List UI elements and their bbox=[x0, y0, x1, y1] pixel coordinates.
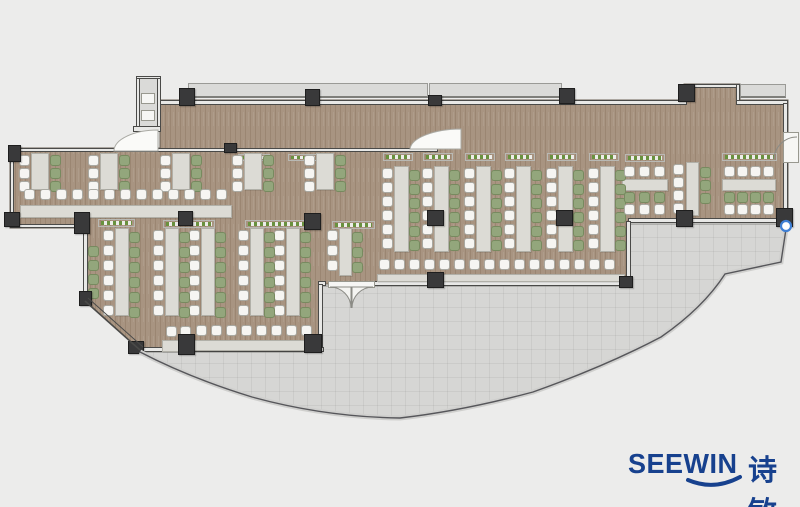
chair-green bbox=[750, 192, 761, 203]
chair-green bbox=[215, 277, 226, 288]
structural-column bbox=[556, 210, 573, 226]
chair-green bbox=[179, 262, 190, 273]
chair-white bbox=[422, 196, 433, 207]
chair-white bbox=[588, 210, 599, 221]
chair-white bbox=[136, 189, 147, 200]
chair-green bbox=[573, 226, 584, 237]
chair-white bbox=[232, 155, 243, 166]
chair-green bbox=[264, 247, 275, 258]
chair-green bbox=[615, 226, 626, 237]
chair-white bbox=[103, 275, 114, 286]
chair-white bbox=[168, 189, 179, 200]
structural-column bbox=[79, 291, 92, 306]
chair-green bbox=[573, 198, 584, 209]
desk-table bbox=[244, 153, 262, 190]
chair-green bbox=[129, 232, 140, 243]
chair-white bbox=[464, 196, 475, 207]
desk-table bbox=[600, 166, 615, 252]
chair-green bbox=[263, 155, 274, 166]
chair-white bbox=[499, 259, 510, 270]
chair-green bbox=[119, 155, 130, 166]
wall-segment bbox=[783, 103, 788, 134]
chair-white bbox=[103, 290, 114, 301]
chair-white bbox=[166, 326, 177, 337]
chair-white bbox=[673, 177, 684, 188]
chair-green bbox=[491, 226, 502, 237]
chair-green bbox=[88, 260, 99, 271]
structural-column bbox=[305, 89, 320, 106]
desk-table bbox=[339, 228, 352, 276]
chair-green bbox=[615, 240, 626, 251]
chair-green bbox=[491, 170, 502, 181]
chair-white bbox=[382, 196, 393, 207]
chair-white bbox=[382, 182, 393, 193]
desk-table bbox=[250, 228, 264, 316]
chair-white bbox=[588, 196, 599, 207]
chair-white bbox=[304, 168, 315, 179]
chair-white bbox=[464, 238, 475, 249]
chair-green bbox=[215, 247, 226, 258]
chair-green bbox=[573, 170, 584, 181]
chair-white bbox=[103, 260, 114, 271]
chair-green bbox=[335, 168, 346, 179]
chair-green bbox=[449, 170, 460, 181]
chair-white bbox=[737, 204, 748, 215]
chair-white bbox=[160, 168, 171, 179]
chair-white bbox=[327, 230, 338, 241]
door-panel bbox=[141, 93, 155, 104]
chair-white bbox=[750, 166, 761, 177]
chair-white bbox=[379, 259, 390, 270]
chair-white bbox=[238, 275, 249, 286]
structural-column bbox=[179, 88, 195, 106]
structural-column bbox=[304, 334, 322, 353]
chair-white bbox=[604, 259, 615, 270]
chair-green bbox=[531, 198, 542, 209]
structural-column bbox=[74, 212, 90, 234]
chair-green bbox=[409, 170, 420, 181]
chair-green bbox=[88, 246, 99, 257]
chair-white bbox=[546, 182, 557, 193]
chair-green bbox=[179, 277, 190, 288]
desk-planter bbox=[245, 220, 308, 228]
chair-white bbox=[654, 166, 665, 177]
wall-segment bbox=[736, 84, 740, 101]
chair-white bbox=[504, 224, 515, 235]
chair-green bbox=[449, 226, 460, 237]
chair-white bbox=[304, 181, 315, 192]
chair-green bbox=[50, 155, 61, 166]
chair-green bbox=[300, 307, 311, 318]
structural-column bbox=[619, 276, 633, 288]
chair-green bbox=[531, 226, 542, 237]
brand-logo-chinese: 诗敏 bbox=[748, 447, 800, 507]
chair-white bbox=[624, 204, 635, 215]
chair-green bbox=[409, 198, 420, 209]
chair-green bbox=[409, 240, 420, 251]
desk-table bbox=[115, 228, 129, 316]
desk-table bbox=[686, 162, 699, 216]
chair-green bbox=[179, 307, 190, 318]
chair-green bbox=[263, 181, 274, 192]
desk-table bbox=[193, 340, 315, 351]
chair-white bbox=[588, 182, 599, 193]
structural-column bbox=[428, 95, 442, 106]
chair-green bbox=[300, 292, 311, 303]
chair-white bbox=[394, 259, 405, 270]
chair-white bbox=[19, 168, 30, 179]
chair-green bbox=[409, 226, 420, 237]
chair-white bbox=[409, 259, 420, 270]
desk-table bbox=[434, 166, 449, 252]
chair-white bbox=[504, 182, 515, 193]
chair-white bbox=[189, 290, 200, 301]
chair-white bbox=[737, 166, 748, 177]
chair-white bbox=[514, 259, 525, 270]
chair-white bbox=[763, 166, 774, 177]
chair-green bbox=[300, 277, 311, 288]
chair-white bbox=[274, 260, 285, 271]
chair-white bbox=[724, 204, 735, 215]
desk-planter bbox=[589, 153, 619, 161]
chair-white bbox=[238, 230, 249, 241]
chair-green bbox=[491, 198, 502, 209]
chair-green bbox=[215, 307, 226, 318]
chair-white bbox=[639, 204, 650, 215]
brand-logo-latin: SEEWIN bbox=[628, 449, 738, 481]
chair-green bbox=[352, 247, 363, 258]
chair-green bbox=[264, 277, 275, 288]
chair-white bbox=[382, 224, 393, 235]
chair-white bbox=[588, 238, 599, 249]
chair-white bbox=[196, 325, 207, 336]
desk-table bbox=[558, 166, 573, 252]
chair-green bbox=[264, 262, 275, 273]
chair-green bbox=[215, 292, 226, 303]
chair-green bbox=[335, 155, 346, 166]
chair-white bbox=[559, 259, 570, 270]
chair-green bbox=[531, 212, 542, 223]
chair-white bbox=[304, 155, 315, 166]
door-panel bbox=[783, 132, 799, 163]
structural-column bbox=[559, 88, 575, 104]
desk-table bbox=[100, 153, 118, 190]
chair-white bbox=[274, 245, 285, 256]
chair-white bbox=[546, 238, 557, 249]
chair-white bbox=[238, 305, 249, 316]
chair-green bbox=[491, 240, 502, 251]
chair-white bbox=[422, 182, 433, 193]
chair-green bbox=[50, 168, 61, 179]
chair-green bbox=[191, 168, 202, 179]
chair-white bbox=[238, 245, 249, 256]
chair-white bbox=[286, 325, 297, 336]
chair-white bbox=[504, 210, 515, 221]
chair-green bbox=[300, 247, 311, 258]
brand-logo: SEEWIN 诗敏 bbox=[628, 449, 800, 494]
desk-planter bbox=[505, 153, 535, 161]
structural-column bbox=[427, 210, 444, 226]
chair-white bbox=[763, 204, 774, 215]
chair-green bbox=[700, 193, 711, 204]
chair-green bbox=[573, 212, 584, 223]
chair-green bbox=[700, 167, 711, 178]
chair-white bbox=[238, 260, 249, 271]
chair-green bbox=[88, 274, 99, 285]
chair-white bbox=[327, 260, 338, 271]
window-ledge bbox=[429, 83, 562, 98]
chair-green bbox=[409, 184, 420, 195]
door-panel bbox=[328, 281, 375, 288]
floor-plan-canvas: SEEWIN 诗敏 bbox=[0, 0, 800, 507]
chair-white bbox=[274, 275, 285, 286]
wall-segment bbox=[157, 78, 161, 129]
chair-white bbox=[750, 204, 761, 215]
chair-green bbox=[449, 212, 460, 223]
chair-white bbox=[274, 305, 285, 316]
plan-elements bbox=[0, 0, 800, 507]
chair-white bbox=[464, 224, 475, 235]
chair-white bbox=[654, 204, 665, 215]
structural-column bbox=[427, 272, 444, 288]
chair-green bbox=[449, 240, 460, 251]
structural-column bbox=[178, 211, 193, 226]
chair-white bbox=[211, 325, 222, 336]
structural-column bbox=[128, 341, 144, 354]
chair-green bbox=[724, 192, 735, 203]
chair-white bbox=[639, 166, 650, 177]
chair-white bbox=[103, 305, 114, 316]
desk-table bbox=[165, 228, 179, 316]
chair-green bbox=[491, 184, 502, 195]
structural-column bbox=[224, 143, 237, 153]
chair-white bbox=[232, 181, 243, 192]
chair-white bbox=[574, 259, 585, 270]
desk-table bbox=[394, 166, 409, 252]
chair-white bbox=[424, 259, 435, 270]
chair-green bbox=[129, 292, 140, 303]
desk-planter bbox=[465, 153, 495, 161]
desk-table bbox=[722, 179, 776, 191]
desk-table bbox=[286, 228, 300, 316]
chair-green bbox=[264, 307, 275, 318]
chair-white bbox=[454, 259, 465, 270]
chair-white bbox=[464, 210, 475, 221]
chair-green bbox=[129, 277, 140, 288]
chair-green bbox=[573, 184, 584, 195]
chair-white bbox=[546, 196, 557, 207]
desk-table bbox=[516, 166, 531, 252]
chair-white bbox=[504, 238, 515, 249]
chair-white bbox=[184, 189, 195, 200]
chair-white bbox=[153, 260, 164, 271]
structural-column bbox=[776, 208, 793, 227]
chair-white bbox=[382, 210, 393, 221]
chair-white bbox=[439, 259, 450, 270]
chair-white bbox=[153, 275, 164, 286]
chair-white bbox=[484, 259, 495, 270]
desk-table bbox=[172, 153, 190, 190]
desk-planter bbox=[722, 153, 777, 161]
chair-green bbox=[264, 232, 275, 243]
chair-white bbox=[189, 275, 200, 286]
structural-column bbox=[8, 145, 21, 162]
chair-white bbox=[56, 189, 67, 200]
chair-green bbox=[300, 262, 311, 273]
chair-white bbox=[382, 168, 393, 179]
desk-planter bbox=[383, 153, 413, 161]
window-ledge bbox=[740, 84, 786, 98]
chair-white bbox=[160, 155, 171, 166]
chair-white bbox=[274, 230, 285, 241]
structural-column bbox=[678, 84, 695, 102]
chair-white bbox=[88, 189, 99, 200]
desk-planter bbox=[423, 153, 453, 161]
chair-green bbox=[491, 212, 502, 223]
chair-white bbox=[422, 238, 433, 249]
chair-white bbox=[238, 290, 249, 301]
chair-white bbox=[189, 305, 200, 316]
chair-green bbox=[639, 192, 650, 203]
chair-white bbox=[544, 259, 555, 270]
chair-white bbox=[673, 164, 684, 175]
desk-table bbox=[201, 228, 215, 316]
chair-white bbox=[724, 166, 735, 177]
chair-green bbox=[352, 262, 363, 273]
chair-white bbox=[200, 189, 211, 200]
chair-green bbox=[129, 307, 140, 318]
chair-white bbox=[382, 238, 393, 249]
door-panel bbox=[141, 110, 155, 121]
chair-white bbox=[153, 305, 164, 316]
chair-green bbox=[215, 262, 226, 273]
chair-white bbox=[226, 325, 237, 336]
chair-white bbox=[241, 325, 252, 336]
chair-white bbox=[72, 189, 83, 200]
chair-white bbox=[624, 166, 635, 177]
chair-white bbox=[589, 259, 600, 270]
chair-white bbox=[189, 230, 200, 241]
structural-column bbox=[4, 212, 20, 227]
chair-green bbox=[409, 212, 420, 223]
chair-white bbox=[529, 259, 540, 270]
structural-column bbox=[178, 334, 195, 355]
chair-green bbox=[624, 192, 635, 203]
wall-segment bbox=[133, 126, 161, 132]
wall-segment bbox=[160, 100, 687, 105]
chair-white bbox=[24, 189, 35, 200]
chair-green bbox=[129, 247, 140, 258]
chair-green bbox=[531, 240, 542, 251]
chair-green bbox=[700, 180, 711, 191]
chair-white bbox=[88, 168, 99, 179]
chair-white bbox=[469, 259, 480, 270]
chair-white bbox=[232, 168, 243, 179]
desk-planter bbox=[98, 219, 135, 227]
chair-white bbox=[464, 182, 475, 193]
wall-segment bbox=[628, 218, 788, 223]
chair-white bbox=[588, 224, 599, 235]
chair-white bbox=[153, 245, 164, 256]
chair-white bbox=[256, 325, 267, 336]
chair-green bbox=[737, 192, 748, 203]
desk-table bbox=[476, 166, 491, 252]
chair-green bbox=[179, 232, 190, 243]
desk-table bbox=[31, 153, 49, 190]
chair-green bbox=[335, 181, 346, 192]
chair-white bbox=[546, 168, 557, 179]
chair-white bbox=[271, 325, 282, 336]
chair-white bbox=[103, 245, 114, 256]
chair-green bbox=[449, 198, 460, 209]
desk-table bbox=[316, 153, 334, 190]
chair-white bbox=[327, 245, 338, 256]
desk-table bbox=[622, 179, 668, 191]
desk-planter bbox=[547, 153, 577, 161]
chair-white bbox=[120, 189, 131, 200]
wall-segment bbox=[136, 78, 140, 129]
chair-green bbox=[531, 170, 542, 181]
chair-white bbox=[673, 190, 684, 201]
chair-white bbox=[464, 168, 475, 179]
wall-segment bbox=[736, 100, 788, 105]
desk-table bbox=[377, 274, 625, 282]
chair-green bbox=[763, 192, 774, 203]
chair-white bbox=[189, 245, 200, 256]
chair-white bbox=[104, 189, 115, 200]
chair-green bbox=[300, 232, 311, 243]
chair-white bbox=[103, 230, 114, 241]
chair-white bbox=[153, 290, 164, 301]
chair-white bbox=[504, 196, 515, 207]
chair-green bbox=[191, 155, 202, 166]
structural-column bbox=[676, 210, 693, 227]
desk-table bbox=[20, 205, 232, 218]
chair-white bbox=[504, 168, 515, 179]
desk-planter bbox=[625, 154, 665, 162]
chair-white bbox=[216, 189, 227, 200]
chair-green bbox=[119, 168, 130, 179]
structural-column bbox=[304, 213, 321, 230]
chair-white bbox=[274, 290, 285, 301]
chair-white bbox=[588, 168, 599, 179]
chair-white bbox=[422, 168, 433, 179]
chair-green bbox=[573, 240, 584, 251]
chair-white bbox=[153, 230, 164, 241]
chair-green bbox=[352, 232, 363, 243]
chair-green bbox=[129, 262, 140, 273]
chair-green bbox=[264, 292, 275, 303]
chair-green bbox=[449, 184, 460, 195]
chair-green bbox=[654, 192, 665, 203]
chair-white bbox=[88, 155, 99, 166]
chair-white bbox=[189, 260, 200, 271]
chair-white bbox=[40, 189, 51, 200]
chair-white bbox=[152, 189, 163, 200]
chair-green bbox=[215, 232, 226, 243]
chair-green bbox=[263, 168, 274, 179]
chair-green bbox=[179, 247, 190, 258]
chair-green bbox=[179, 292, 190, 303]
chair-green bbox=[531, 184, 542, 195]
